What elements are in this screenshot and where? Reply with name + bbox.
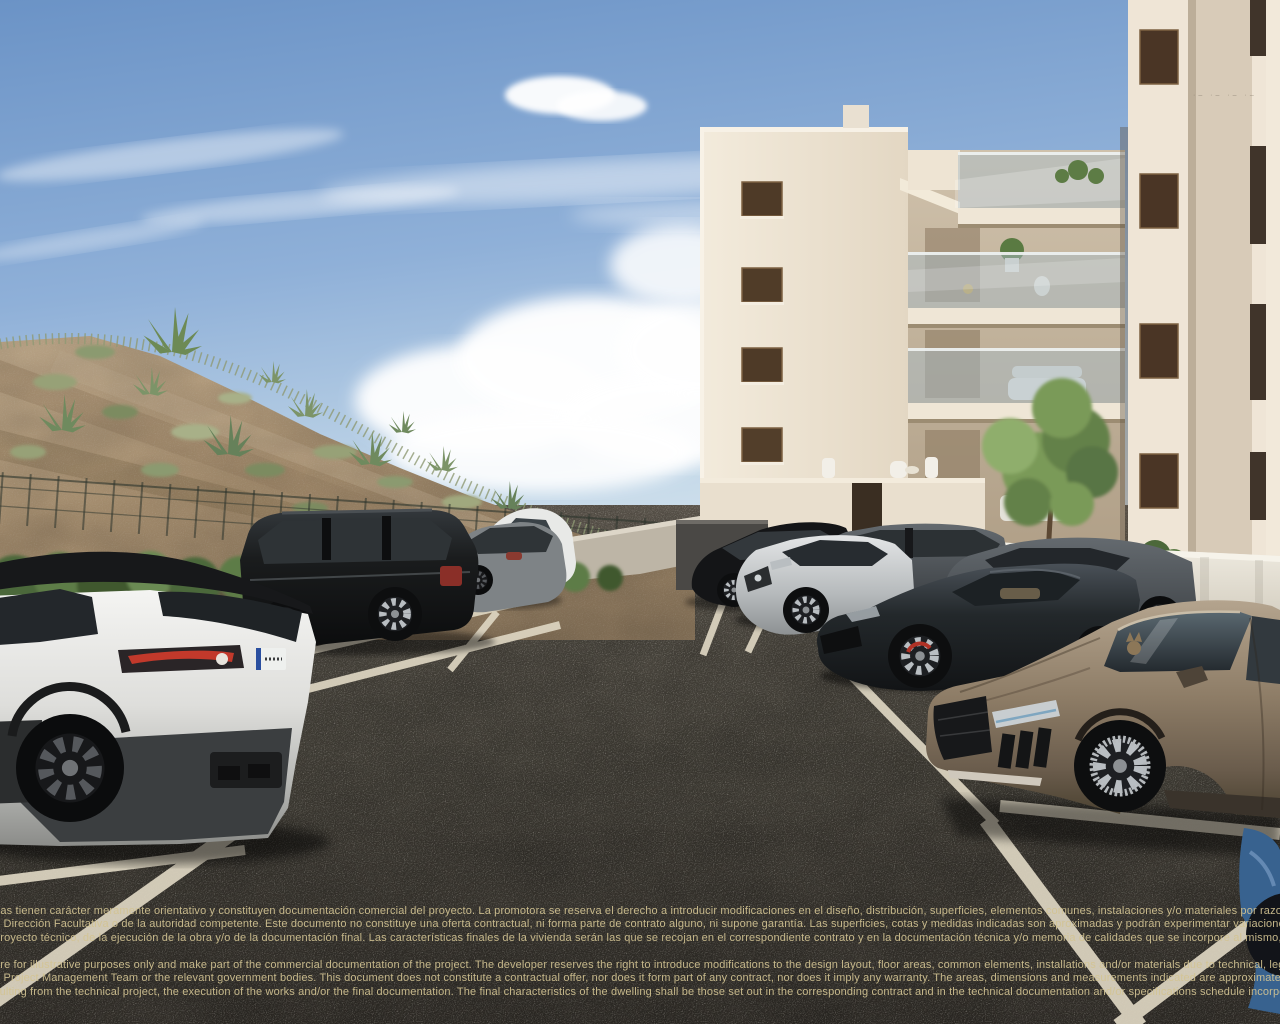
right-building [1128, 0, 1280, 570]
wheel [16, 714, 124, 822]
developer-watermark: ·– ·– ·– ·– [1193, 92, 1257, 99]
grass-tuft [10, 445, 46, 459]
wheel [1074, 720, 1166, 812]
grass-tuft [442, 495, 482, 509]
terrace-plant [1068, 160, 1088, 180]
wheel [783, 587, 829, 633]
tree-foliage [1004, 478, 1052, 526]
grass-tuft [102, 405, 138, 419]
render-canvas: fías tienen carácter meramente orientati… [0, 0, 1280, 1024]
glass-top-rail [958, 152, 1125, 155]
taillight [506, 552, 522, 560]
disclaimer-en-line: sulting from the technical project, the … [0, 986, 1280, 999]
white-vase [890, 461, 907, 478]
window [742, 348, 782, 382]
window-sill [740, 462, 784, 465]
wheel [368, 587, 422, 641]
recessed-strip [1188, 0, 1252, 570]
white-vase [925, 457, 938, 478]
grass-tuft [377, 476, 413, 488]
slit-window [1250, 304, 1266, 400]
building-gap-shadow [1120, 127, 1128, 560]
tree-foliage [982, 418, 1038, 474]
slit-window [1250, 452, 1266, 520]
ledge-top [700, 478, 985, 483]
slit-window [1250, 0, 1266, 56]
car-white-suv-velar [0, 552, 330, 864]
grass-tuft [313, 445, 357, 459]
white-bowl [905, 466, 919, 474]
window [742, 428, 782, 462]
window [742, 268, 782, 302]
exhaust [248, 764, 270, 778]
exhaust [218, 766, 240, 780]
disclaimer-es-line: proyecto técnico, de la ejecución de la … [0, 932, 1280, 945]
terrace-plant [1055, 169, 1069, 183]
window [1140, 454, 1178, 508]
window [1140, 30, 1178, 84]
disclaimer-en-line: e Project Management Team or the relevan… [0, 972, 1280, 985]
window [742, 182, 782, 216]
grass-tuft [141, 463, 179, 477]
glass-top-rail [908, 348, 1125, 351]
window [1140, 324, 1178, 378]
tree-foliage [1050, 482, 1094, 526]
slab-shadow [908, 324, 1125, 328]
balcony-slab [958, 208, 1125, 224]
bush [597, 565, 623, 591]
disclaimer-en-line: are for illustrative purposes only and m… [0, 959, 1280, 972]
glass-top-rail [908, 252, 1125, 255]
pillar [382, 516, 391, 560]
brand-badge [755, 575, 762, 582]
dark-wall-top [676, 520, 768, 524]
step-wall [908, 150, 960, 190]
pillar [322, 518, 331, 560]
terrace-plant [1088, 168, 1104, 184]
car-glass [258, 518, 452, 564]
taillight [440, 566, 462, 586]
cloud-puff [557, 91, 647, 121]
window-sill [740, 382, 784, 385]
slit-window [1250, 146, 1266, 244]
slab-shadow [958, 224, 1125, 228]
pillar [905, 528, 913, 558]
scene-render [0, 0, 1280, 1024]
plate-blue-band [256, 648, 261, 670]
grass-tuft [245, 463, 285, 477]
grass-tuft [75, 345, 115, 359]
glass-rail [908, 348, 1125, 403]
grass-tuft [218, 392, 252, 404]
disclaimer-english: are for illustrative purposes only and m… [0, 959, 1280, 999]
tree-foliage [1032, 378, 1092, 438]
parapet-highlight [700, 127, 908, 132]
cloud-puff [385, 412, 695, 492]
balcony-slab [908, 308, 1125, 324]
wheel [888, 624, 952, 688]
cat-head [1127, 641, 1141, 655]
tan-interior [1000, 588, 1040, 599]
disclaimer-es-line: fías tienen carácter meramente orientati… [0, 905, 1280, 918]
window-sill [740, 302, 784, 305]
disclaimer-spanish: fías tienen carácter meramente orientati… [0, 905, 1280, 945]
window [1140, 174, 1178, 228]
disclaimer-es-line: a Dirección Facultativa o de la autorida… [0, 918, 1280, 931]
right-edge-strip [1266, 0, 1280, 570]
window-sill [740, 216, 784, 219]
grass-tuft [33, 374, 77, 390]
rooftop-box [843, 105, 869, 128]
hex-grille [933, 696, 992, 760]
recess-inner-shadow [1188, 0, 1196, 570]
white-vase [822, 458, 835, 478]
reverse-light [216, 653, 228, 665]
